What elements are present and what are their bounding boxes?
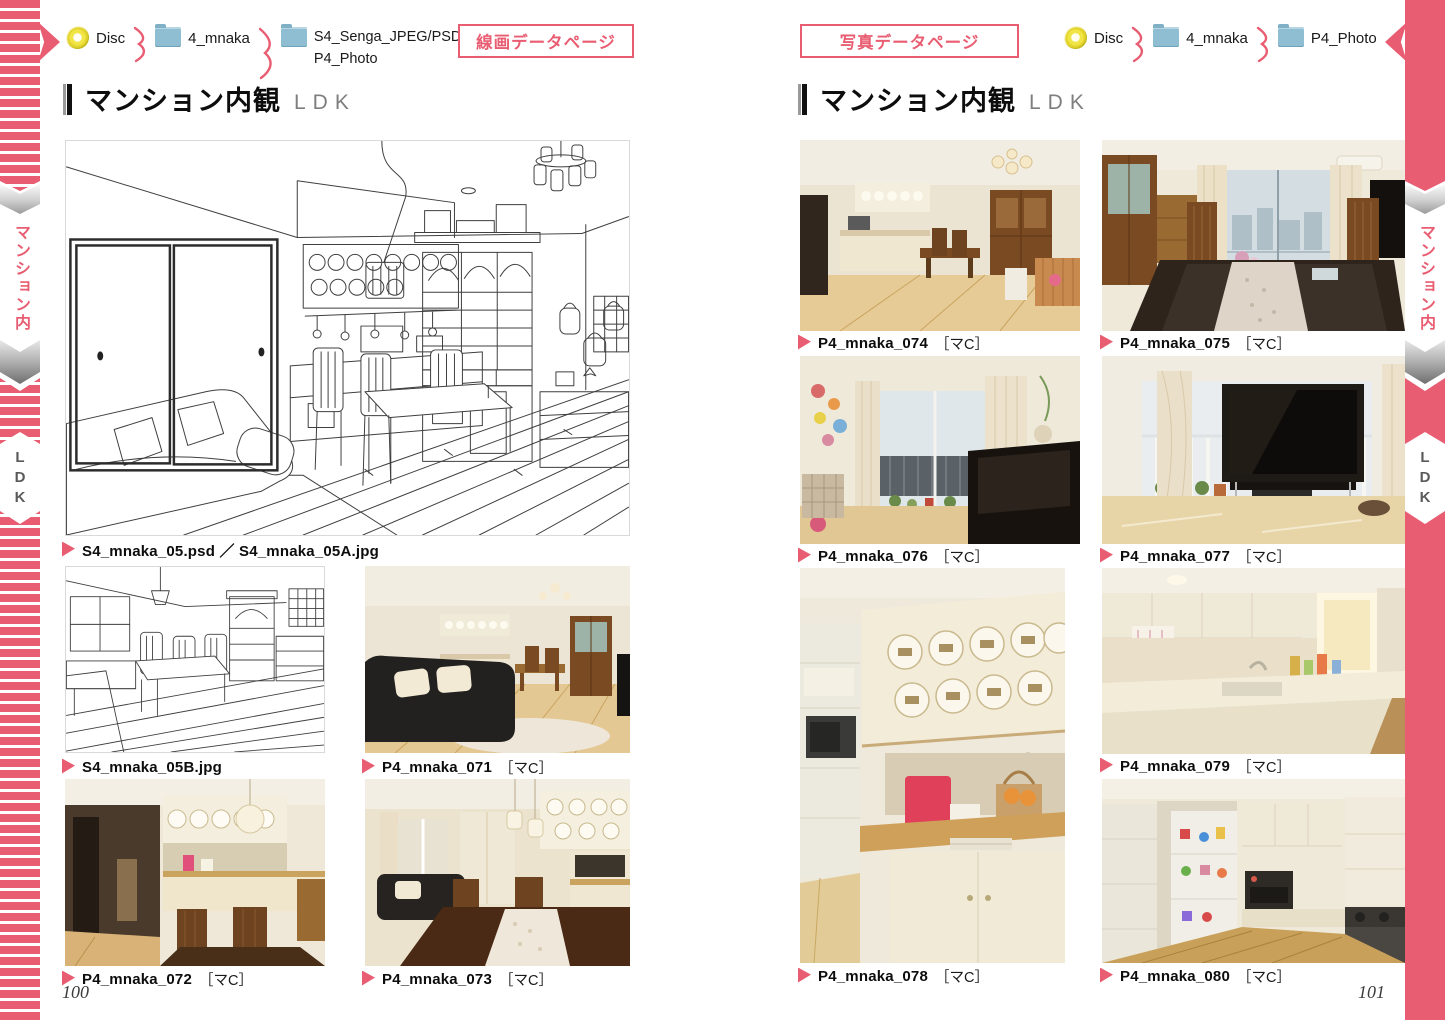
breadcrumb-folder2-label: S4_Senga_JPEG/PSD P4_Photo: [314, 24, 462, 71]
caption-filename: S4_mnaka_05B.jpg: [82, 759, 222, 776]
flag-icon: [1100, 548, 1113, 565]
caption-tag: ［マC］: [199, 969, 253, 990]
page-subtitle: LDK: [294, 92, 356, 115]
caption-photo-078: P4_mnaka_078 ［マC］: [798, 966, 989, 986]
section-title: マンション内観 LDK: [798, 84, 1091, 115]
photo-p4-mnaka-077: [1102, 356, 1405, 544]
flag-icon: [1100, 968, 1113, 985]
breadcrumb-folder2-label: P4_Photo: [1311, 24, 1377, 47]
caption-filename: P4_mnaka_077: [1120, 548, 1230, 565]
title-bar: [63, 84, 72, 115]
caption-filename: P4_mnaka_076: [818, 548, 928, 565]
caption-filename: P4_mnaka_071: [382, 759, 492, 776]
section-title: マンション内観 LDK: [63, 84, 356, 115]
photo-p4-mnaka-079: [1102, 568, 1405, 754]
caption-tag: ［マC］: [935, 333, 989, 354]
photo-p4-mnaka-076: [800, 356, 1080, 544]
line-art-b-illustration: [66, 567, 324, 752]
right-category-tab-label: マンション内: [1405, 220, 1445, 336]
caption-photo-073: P4_mnaka_073 ［マC］: [362, 969, 553, 989]
folder-icon: [281, 27, 307, 47]
photo-p4-mnaka-078: [800, 568, 1065, 963]
caption-photo-071: P4_mnaka_071 ［マC］: [362, 757, 553, 777]
caption-photo-074: P4_mnaka_074 ［マC］: [798, 333, 989, 353]
breadcrumb-folder1-label: 4_mnaka: [188, 24, 250, 47]
kitchen-fridge-photo-illustration: [1102, 779, 1405, 963]
caption-tag: ［マC］: [935, 546, 989, 567]
breadcrumb-folder2-line2: P4_Photo: [314, 51, 378, 67]
photo-p4-mnaka-072: [65, 779, 325, 966]
flag-icon: [798, 335, 811, 352]
caption-photo-079: P4_mnaka_079 ［マC］: [1100, 756, 1291, 776]
caption-photo-072: P4_mnaka_072 ［マC］: [62, 969, 253, 989]
caption-tag: ［マC］: [499, 757, 553, 778]
book-spread: マンション内 LDK マンション内 LDK Disc 4_mnaka S4_Se…: [0, 0, 1445, 1020]
photo-p4-mnaka-074: [800, 140, 1080, 331]
flag-icon: [362, 759, 375, 776]
page-number-right: 101: [1358, 982, 1385, 1003]
caption-tag: ［マC］: [935, 966, 989, 987]
breadcrumb: Disc 4_mnaka S4_Senga_JPEG/PSD P4_Photo: [66, 24, 461, 81]
caption-filename: P4_mnaka_080: [1120, 968, 1230, 985]
hallway-kitchen-photo-illustration: [65, 779, 325, 966]
caption-photo-075: P4_mnaka_075 ［マC］: [1100, 333, 1291, 353]
flag-icon: [62, 542, 75, 559]
caption-tag: ［マC］: [1237, 333, 1291, 354]
caption-tag: ［マC］: [499, 969, 553, 990]
photo-p4-mnaka-071: [365, 566, 630, 753]
flag-icon: [1100, 758, 1113, 775]
page-title: マンション内観: [85, 88, 281, 115]
breadcrumb-separator-icon: [1130, 25, 1146, 63]
living-room-photo-illustration: [365, 566, 630, 753]
left-category-tab-label: マンション内: [0, 220, 40, 336]
left-sub-tab-label: LDK: [0, 446, 40, 512]
dining-room-photo-illustration: [365, 779, 630, 966]
caption-filename: P4_mnaka_078: [818, 968, 928, 985]
caption-filename: P4_mnaka_075: [1120, 335, 1230, 352]
flag-icon: [798, 548, 811, 565]
photo-p4-mnaka-080: [1102, 779, 1405, 963]
flag-icon: [62, 759, 75, 776]
caption-photo-077: P4_mnaka_077 ［マC］: [1100, 546, 1291, 566]
flag-icon: [362, 971, 375, 988]
window-tv-photo-illustration: [800, 356, 1080, 544]
page-title: マンション内観: [820, 88, 1016, 115]
caption-tag: ［マC］: [1237, 546, 1291, 567]
caption-photo-076: P4_mnaka_076 ［マC］: [798, 546, 989, 566]
caption-tag: ［マC］: [1237, 756, 1291, 777]
flag-icon: [798, 968, 811, 985]
breadcrumb-disc-label: Disc: [1094, 24, 1123, 47]
breadcrumb-separator-icon: [1255, 25, 1271, 63]
folder-icon: [155, 27, 181, 47]
caption-filename: P4_mnaka_074: [818, 335, 928, 352]
left-edge-arrow-icon: [38, 22, 60, 62]
breadcrumb-folder2-line1: S4_Senga_JPEG/PSD: [314, 29, 462, 45]
tv-photo-illustration: [1102, 356, 1405, 544]
page-type-badge: 写真データページ: [800, 24, 1019, 58]
disc-icon: [1064, 26, 1087, 49]
breadcrumb-separator-icon: [257, 25, 274, 81]
right-sub-tab-label: LDK: [1405, 446, 1445, 512]
disc-icon: [66, 26, 89, 49]
caption-filename: P4_mnaka_072: [82, 971, 192, 988]
folder-icon: [1278, 27, 1304, 47]
title-bar: [798, 84, 807, 115]
line-art-main-illustration: [66, 141, 629, 535]
breadcrumb: Disc 4_mnaka P4_Photo: [1064, 24, 1377, 63]
caption-filename: P4_mnaka_073: [382, 971, 492, 988]
caption-tag: ［マC］: [1237, 966, 1291, 987]
line-art-main: [65, 140, 630, 536]
ldk-photo-illustration: [800, 140, 1080, 331]
caption-filename: S4_mnaka_05.psd ／ S4_mnaka_05A.jpg: [82, 540, 379, 561]
breadcrumb-separator-icon: [132, 25, 148, 63]
kitchen-counter-photo-illustration: [800, 568, 1065, 963]
breadcrumb-folder1-label: 4_mnaka: [1186, 24, 1248, 47]
right-edge-arrow-icon: [1385, 22, 1407, 62]
caption-photo-080: P4_mnaka_080 ［マC］: [1100, 966, 1291, 986]
caption-main-art: S4_mnaka_05.psd ／ S4_mnaka_05A.jpg: [62, 540, 379, 560]
photo-p4-mnaka-073: [365, 779, 630, 966]
flag-icon: [1100, 335, 1113, 352]
dining-window-photo-illustration: [1102, 140, 1405, 331]
page-type-badge: 線画データページ: [458, 24, 634, 58]
kitchen-sink-photo-illustration: [1102, 568, 1405, 754]
caption-filename: P4_mnaka_079: [1120, 758, 1230, 775]
photo-p4-mnaka-075: [1102, 140, 1405, 331]
page-number-left: 100: [62, 982, 89, 1003]
page-subtitle: LDK: [1029, 92, 1091, 115]
caption-sketch-b: S4_mnaka_05B.jpg: [62, 757, 222, 777]
line-art-b: [65, 566, 325, 753]
folder-icon: [1153, 27, 1179, 47]
breadcrumb-disc-label: Disc: [96, 24, 125, 47]
